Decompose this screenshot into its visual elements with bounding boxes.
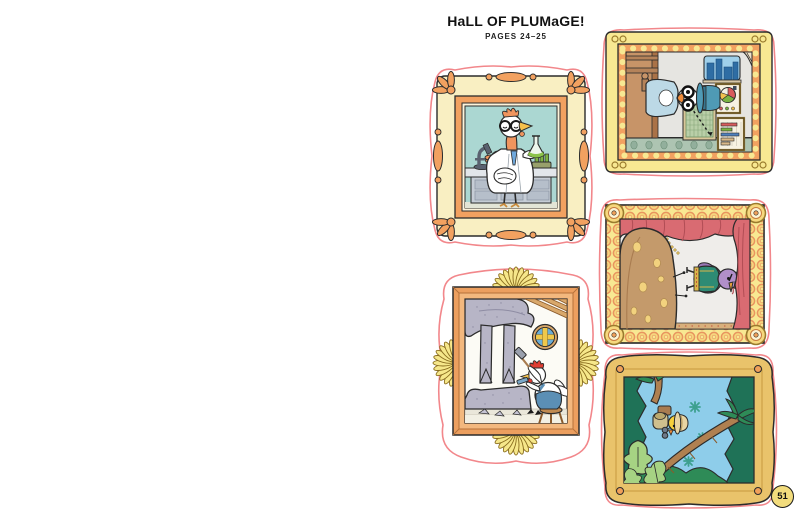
round-window: [533, 325, 558, 350]
scientist-sticker-art: [425, 62, 597, 250]
page-title: HaLL OF PLUMaGE!: [418, 13, 614, 29]
page-number-badge: 51: [771, 485, 794, 508]
sticker-scientist-bird[interactable]: [425, 62, 597, 250]
opera-sticker-art: [598, 197, 772, 351]
sticker-sculptor-hen[interactable]: [427, 263, 605, 465]
city-window: [703, 56, 741, 83]
sticker-book-page: HaLL OF PLUMaGE! PAGES 24–25: [0, 0, 810, 518]
page-subtitle: PAGES 24–25: [418, 32, 614, 41]
bar-chart-frame: [718, 118, 744, 150]
page-number: 51: [777, 491, 788, 502]
sticker-explorer-chick[interactable]: [598, 349, 780, 511]
jungle-sticker-art: [598, 349, 780, 511]
page-header: HaLL OF PLUMaGE! PAGES 24–25: [418, 13, 614, 41]
statistician-sticker-art: [600, 26, 778, 178]
sculptor-sticker-art: [427, 263, 605, 465]
sticker-opera-bird[interactable]: [598, 197, 772, 351]
sticker-statistician-bird[interactable]: [600, 26, 778, 178]
